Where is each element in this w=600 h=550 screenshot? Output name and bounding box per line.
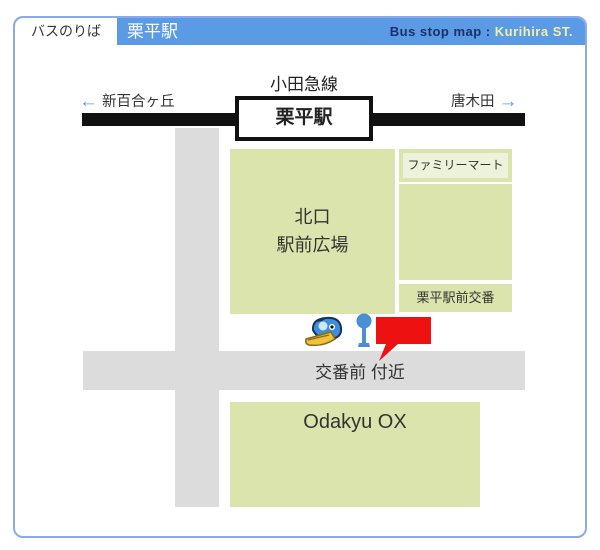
- railway-line-name: 小田急線: [235, 70, 373, 95]
- destination-left-label: 新百合ヶ丘: [102, 94, 175, 110]
- right-arrow-icon: →: [499, 91, 518, 112]
- vertical-road: [175, 128, 219, 507]
- header-bar: バスのりば 栗平駅 Bus stop map : Kurihira ST.: [15, 18, 585, 45]
- bird-mascot-icon: [303, 315, 347, 349]
- familymart-block: ファミリーマート: [399, 149, 512, 182]
- destination-right: 唐木田 →: [451, 90, 518, 113]
- subtitle-station-name: Kurihira ST.: [495, 24, 573, 39]
- red-flag-marker-icon: [376, 317, 432, 362]
- header-subtitle: Bus stop map : Kurihira ST.: [390, 18, 573, 45]
- odakyu-ox-block: Odakyu OX: [230, 402, 480, 507]
- bus-stop-pole-icon: [355, 313, 373, 349]
- north-exit-plaza-block: 北口 駅前広場: [230, 149, 395, 314]
- station-box: 栗平駅: [235, 96, 373, 141]
- bus-stop-map-panel: バスのりば 栗平駅 Bus stop map : Kurihira ST. 小田…: [13, 16, 587, 538]
- police-box-block: 栗平駅前交番: [399, 284, 512, 312]
- subtitle-prefix: Bus stop map :: [390, 24, 495, 39]
- plaza-label-line2: 駅前広場: [277, 232, 349, 260]
- bus-stop-name-label: 交番前 付近: [265, 358, 455, 383]
- header-tab-label: バスのりば: [15, 18, 117, 45]
- header-station-title: 栗平駅: [127, 18, 178, 45]
- plaza-label-line1: 北口: [295, 204, 331, 232]
- building-block: [399, 184, 512, 280]
- left-arrow-icon: ←: [79, 91, 98, 112]
- destination-right-label: 唐木田: [451, 94, 495, 110]
- destination-left: ← 新百合ヶ丘: [79, 90, 175, 113]
- familymart-label: ファミリーマート: [403, 153, 508, 178]
